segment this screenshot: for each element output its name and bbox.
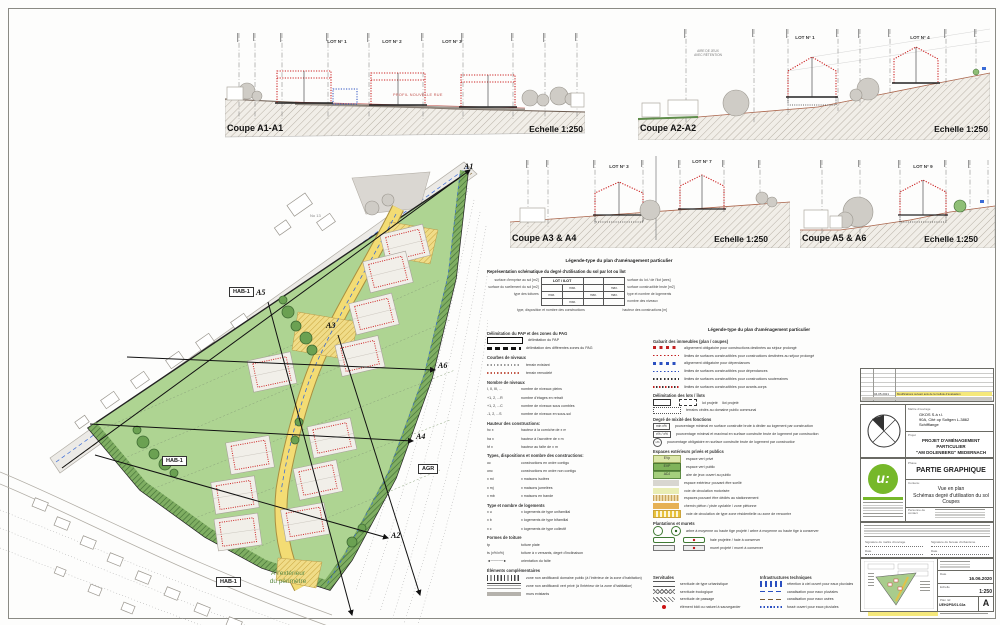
legend-label: orientation du faîte — [521, 559, 551, 563]
legend-row: min x% pourcentage minimal en surface co… — [653, 422, 865, 430]
legend-label: x maisons en bande — [521, 494, 553, 498]
legend-label: espaces pouvant être dédiés au stationne… — [684, 496, 759, 500]
legend-swatch — [760, 606, 782, 608]
coupe-a1-scale: Echelle 1:250 — [513, 124, 583, 134]
legend-row: EVP espace vert public — [653, 463, 865, 471]
legend-row: Espaces extérieurs privés et publics — [653, 447, 865, 455]
legend-code: oc — [487, 461, 521, 465]
schema-left-labels: surface d'emprise au sol [m2] surface du… — [487, 277, 539, 298]
legend-section-header: Délimitation du PAP et des zones du PAG — [487, 331, 567, 336]
title-block: 04.05.2021 Modifications suivant avis de… — [858, 366, 994, 616]
legend-row: EVp espace vert privé — [653, 455, 865, 463]
legend-section-header: Gabarit des immeubles (plan / coupes) — [653, 339, 728, 344]
legend-swatch — [487, 347, 521, 350]
legend-label: arbre à moyenne ou haute tige projeté / … — [686, 529, 819, 533]
legend-label: voie de circulation motorisée — [684, 489, 730, 493]
coupe-a3-a4: LOT N° 3 LOT N° 7 Coupe A3 & A4 Echelle … — [510, 148, 790, 248]
legend-row: fossé ouvert pour eaux pluviales — [760, 603, 868, 611]
legend-left-column: Délimitation du PAP et des zones du PAG … — [487, 328, 651, 598]
legend-row: hf x hauteur au faîte de x m — [487, 443, 651, 451]
legend-row: arbre à moyenne ou haute tige projeté / … — [653, 526, 865, 536]
legend-label: canalisation pour eaux usées — [787, 597, 834, 601]
keyplan-thumbnail — [864, 561, 934, 609]
legend-label: x logements de type bifamilial — [521, 518, 568, 522]
legend-row: canalisation pour eaux usées — [760, 596, 868, 604]
legend-row: délimitation du PAP — [487, 336, 651, 344]
zone-label-hab1-a: HAB-1 — [229, 287, 254, 297]
client-project-block: Maître d'ouvrage GKOS S.à r.l. 90A, Cité… — [860, 404, 994, 458]
legend-code: ◄─────► — [487, 559, 521, 563]
coupe-a5-a6-title: Coupe A5 & A6 — [802, 233, 866, 243]
legend-label-2: îlot projeté — [722, 401, 739, 405]
coupe-a2-scale: Echelle 1:250 — [918, 124, 988, 134]
schema-subtitle: Représentation schématique du degré d'ut… — [487, 269, 685, 274]
legend-label: constructions en ordre contigu — [521, 461, 569, 465]
section-label-a5: A5 — [256, 288, 265, 297]
legal-text — [864, 525, 990, 537]
coupe-a2-title: Coupe A2-A2 — [640, 123, 696, 133]
legend-label: nombre de niveaux pleins — [521, 387, 562, 391]
legend-label: limites de surfaces constructibles pour … — [684, 369, 768, 373]
legend-row: Courbes de niveaux — [487, 353, 651, 361]
coupe-a2-lot-4: LOT N° 4 — [900, 35, 940, 40]
legend-code: x u — [487, 510, 521, 514]
coupe-a4-lot-7: LOT N° 7 — [682, 159, 722, 164]
legend-label: chemin piéton / piste cyclable / zone pi… — [684, 504, 757, 508]
legend-row: x mj x maisons jumelées — [487, 484, 651, 492]
legend-row: Éléments complémentaires — [487, 565, 651, 573]
legend-label: espace vert public — [686, 465, 715, 469]
phase-label: Phase — [908, 461, 917, 465]
legend-code: I, II, III, ... — [487, 387, 521, 391]
legend-code: x c — [487, 527, 521, 531]
legend-code: ts (x%/x%) — [487, 551, 521, 555]
signature-office-line — [931, 546, 989, 547]
coupe-a1-street-note: PROFIL NOUVELLE RUE — [393, 93, 443, 97]
legend-code-boxed: x% / x% — [653, 431, 671, 438]
legend-row: x mi x maisons isolées — [487, 475, 651, 483]
urbanist-address-text — [863, 502, 903, 519]
legend-section-header: Degré de mixité des fonctions — [653, 417, 711, 422]
schema-block: Légende-type du plan d'aménagement parti… — [487, 258, 685, 312]
legend-row: Délimitation des lots / îlots — [653, 391, 865, 399]
legend-swatch — [487, 592, 521, 596]
legend-label: fossé ouvert pour eaux pluviales — [787, 605, 839, 609]
legend-swatch — [487, 372, 521, 373]
legend-row: Type et nombre de logements — [487, 500, 651, 508]
legend-swatch — [653, 526, 663, 536]
legend-label: constructions en ordre non contigu — [521, 469, 576, 473]
file-reference-strip — [860, 612, 992, 616]
urbanist-logo: u: — [868, 464, 898, 494]
legend-label: x logements de type unifamilial — [521, 510, 570, 514]
legend-label: x maisons isolées — [521, 477, 549, 481]
client-label: Maître d'ouvrage — [908, 407, 930, 411]
legend-label: hauteur au faîte de x m — [521, 445, 558, 449]
legend-row: alignement obligatoire pour dépendances — [653, 360, 865, 368]
legend-swatch — [760, 599, 782, 601]
legend-swatch — [653, 378, 679, 380]
content-label: Contenu — [908, 481, 919, 485]
legend-row: limites de surfaces constructibles pour … — [653, 375, 865, 383]
legend-swatch — [653, 371, 679, 373]
legend-label: hauteur à l'acrotère de x m — [521, 437, 564, 441]
legend-row: délimitation des différentes zones du PA… — [487, 344, 651, 352]
legend-label: pourcentage minimal en surface construit… — [675, 424, 813, 428]
legend-swatch — [487, 583, 521, 589]
schema-title: Légende-type du plan d'aménagement parti… — [487, 258, 685, 263]
schema-table: LOT / ILOT max.max. max.max.max. max. — [541, 277, 626, 306]
legend-row: x% / x% pourcentage minimal et maximal e… — [653, 430, 865, 438]
legend-row: x mb x maisons en bande — [487, 492, 651, 500]
legend-label: nombre de niveaux en sous-sol — [521, 412, 571, 416]
field-date-label: Date — [940, 572, 946, 576]
legend-row: Servitudes — [653, 572, 757, 580]
legend-swatch — [487, 337, 523, 344]
schema-bottom-labels: type, disposition et nombre des construc… — [487, 308, 685, 312]
legend-swatch — [653, 495, 679, 501]
legend-section-header: Nombre de niveaux — [487, 380, 525, 385]
legend-swatch-2 — [683, 537, 705, 543]
legend-row: onc constructions en ordre non contigu — [487, 467, 651, 475]
urbanist-logo-band — [863, 497, 903, 500]
legend-label: servitude de passage — [680, 597, 714, 601]
legend-swatch — [653, 399, 671, 406]
legend-label: rétention à ciel ouvert pour eaux pluvia… — [787, 582, 853, 586]
legend-label: lot projeté — [702, 401, 718, 405]
legend-row: espace extérieur pouvant être scellé — [653, 479, 865, 487]
legend-label: zone non aedificandi domaine public (à l… — [526, 576, 642, 580]
legend-row: Nombre de niveaux — [487, 377, 651, 385]
pap-sheet: HAB-1 HAB-1 HAB-1 AGR No 13 À l'extérieu… — [0, 0, 1000, 625]
legend-code: +1, 2, ...R — [487, 396, 521, 400]
legend-row: terrains cédés au domaine public communa… — [653, 407, 865, 415]
legend-code: x mj — [487, 486, 521, 490]
legend-row: servitude écologique — [653, 588, 757, 596]
legend-label: alignement obligatoire pour construction… — [684, 346, 797, 350]
legend-row: limites de surfaces constructibles pour … — [653, 352, 865, 360]
coupe-a5-lot-9: LOT N° 9 — [903, 164, 943, 169]
legend-label: espace extérieur pouvant être scellé — [684, 481, 742, 485]
legend-row: x u x logements de type unifamilial — [487, 508, 651, 516]
legend-swatch: ADJ — [653, 471, 681, 479]
legend-label: espace vert privé — [686, 457, 713, 461]
revision-table: 04.05.2021 Modifications suivant avis de… — [860, 368, 994, 402]
legend-row: Plantations et murets — [653, 518, 865, 526]
legend-label: canalisation pour eaux pluviales — [787, 590, 838, 594]
legend-label: alignement obligatoire pour dépendances — [684, 361, 750, 365]
legend-row: Gabarit des immeubles (plan / coupes) — [653, 336, 865, 344]
keyplan-fields-block: Date 16.06.2020 Echelle 1:250 Plan réf. … — [860, 558, 994, 612]
legend-row: tp toiture plate — [487, 541, 651, 549]
legend-label: servitude écologique — [680, 590, 713, 594]
project-label: Projet — [908, 433, 916, 437]
coupe-a2-playground-note: AIRE DE JEUXAVEC RÉTENTION — [686, 49, 730, 57]
legend-row: chemin piéton / piste cyclable / zone pi… — [653, 502, 865, 510]
coupe-a1-lot-1: LOT N° 1 — [317, 39, 357, 44]
field-index-value: A — [979, 598, 993, 608]
legend-row: -1, 2, ...S nombre de niveaux en sous-so… — [487, 410, 651, 418]
legend-swatch: EVP — [653, 463, 681, 471]
legend-row: +1, 2, ...C nombre de niveaux sous combl… — [487, 402, 651, 410]
legend-row: hc x hauteur à la corniche de x m — [487, 426, 651, 434]
contact-value-text — [935, 509, 985, 519]
legend-swatch — [653, 537, 675, 543]
legend-code: hc x — [487, 428, 521, 432]
legend-code: x b — [487, 518, 521, 522]
legend-row: ts (x%/x%) toiture à x versants, degré d… — [487, 549, 651, 557]
field-date-value: 16.06.2020 — [940, 576, 992, 581]
legend-label: toiture à x versants, degré d'inclinaiso… — [521, 551, 583, 555]
signature-client-line — [865, 546, 923, 547]
legend-swatch — [653, 597, 675, 602]
section-label-a6: A6 — [438, 361, 447, 370]
legend-row: murs existants — [487, 590, 651, 598]
legend-row: canalisation pour eaux pluviales — [760, 588, 868, 596]
legend-row: +1, 2, ...R nombre d'étages en retrait — [487, 394, 651, 402]
legend-swatch — [653, 346, 679, 349]
legend-label: terrains cédés au domaine public communa… — [686, 408, 756, 412]
legend-row: Hauteur des constructions: — [487, 418, 651, 426]
legend-label: servitude de type urbanistique — [680, 582, 728, 586]
coupe-a2-drawing — [638, 15, 990, 140]
field-ref-label: Plan réf. — [940, 598, 951, 602]
legend-row: x b x logements de type bifamilial — [487, 516, 651, 524]
coupe-a3-a4-scale: Echelle 1:250 — [698, 234, 768, 244]
legend-row: limites de surfaces constructibles pour … — [653, 383, 865, 391]
section-label-a1: A1 — [464, 162, 473, 171]
coupe-a3-lot-3: LOT N° 3 — [599, 164, 639, 169]
legend-row: x c x logements de type collectif — [487, 525, 651, 533]
legend-row: terrain existant — [487, 361, 651, 369]
legend-infrastructures: Infrastructures techniques rétention à c… — [760, 572, 868, 611]
legend-section-header: Formes de toiture — [487, 535, 522, 540]
coupe-a3-a4-title: Coupe A3 & A4 — [512, 233, 576, 243]
legend-label: terrain existant — [526, 363, 550, 367]
coupe-a1-drawing — [225, 15, 585, 140]
legend-row: Types, dispositions et nombre des constr… — [487, 451, 651, 459]
legend-code: -1, 2, ...S — [487, 412, 521, 416]
legend-row: servitude de passage — [653, 596, 757, 604]
legend-right-column: Gabarit des immeubles (plan / coupes) al… — [653, 336, 865, 552]
legend-right-title: Légende-type du plan d'aménagement parti… — [653, 327, 865, 332]
section-label-a3: A3 — [326, 321, 335, 330]
field-version-text — [940, 561, 970, 568]
coupe-a1-title: Coupe A1-A1 — [227, 123, 283, 133]
coupe-a2-lot-1: LOT N° 1 — [785, 35, 825, 40]
legend-swatch-2 — [679, 399, 697, 406]
date-office-label: Date — [931, 549, 937, 553]
legend-section-header: Types, dispositions et nombre des constr… — [487, 453, 584, 458]
legend-code: ha x — [487, 437, 521, 441]
client-value: GKOS S.à r.l. 90A, Cité op Soltgen L-386… — [919, 412, 969, 427]
legend-section-header: Type et nombre de logements — [487, 503, 545, 508]
coupe-a1-lot-2: LOT N° 2 — [372, 39, 412, 44]
legend-label: toiture plate — [521, 543, 540, 547]
legend-row: ha x hauteur à l'acrotère de x m — [487, 434, 651, 442]
legend-row: lot projeté îlot projeté — [653, 399, 865, 407]
legend-section-header: Éléments complémentaires — [487, 568, 540, 573]
legend-row: ◄─────► orientation du faîte — [487, 557, 651, 565]
legend-swatch — [760, 581, 782, 587]
legend-label: voie de circulation de type zone résiden… — [686, 512, 791, 516]
legend-swatch — [653, 605, 675, 610]
zone-label-hab1-b: HAB-1 — [162, 456, 187, 466]
content-value: Vue en plan Schémas degré d'utilisation … — [907, 486, 995, 506]
legend-section-header: Délimitation des lots / îlots — [653, 393, 705, 398]
legend-row: servitude de type urbanistique — [653, 580, 757, 588]
legend-code-circle: x% — [653, 438, 662, 447]
legend-label: x maisons jumelées — [521, 486, 553, 490]
legend-label: x logements de type collectif — [521, 527, 566, 531]
legend-swatch — [653, 480, 679, 486]
legend-code: tp — [487, 543, 521, 547]
schema-right-labels: surface du lot / de l'îlot [ares] surfac… — [627, 277, 685, 305]
section-label-a4: A4 — [416, 432, 425, 441]
zone-label-agr: AGR — [418, 464, 438, 474]
legend-row: élément bâti ou naturel à sauvegarder — [653, 603, 757, 611]
coupe-a5-a6-scale: Echelle 1:250 — [908, 234, 978, 244]
legend-swatch — [653, 545, 675, 551]
legend-swatch — [653, 362, 679, 365]
coupe-a1-lot-3: LOT N° 3 — [432, 39, 472, 44]
legend-servitudes: Servitudes servitude de type urbanistiqu… — [653, 572, 757, 611]
legend-row: zone non aedificandi vert privé (à l'int… — [487, 582, 651, 590]
legend-code: hf x — [487, 445, 521, 449]
revision-date: 04.05.2021 — [874, 392, 889, 396]
legend-row: I, II, III, ... nombre de niveaux pleins — [487, 385, 651, 393]
legend-swatch — [653, 355, 679, 357]
legend-code: onc — [487, 469, 521, 473]
house-number-13: No 13 — [310, 213, 321, 218]
legend-code: x mi — [487, 477, 521, 481]
legend-row: muret projeté / muret à conserver — [653, 544, 865, 552]
legend-code: x mb — [487, 494, 521, 498]
outside-perimeter-label: À l'extérieur du périmètre — [252, 570, 324, 585]
legend-swatch — [487, 364, 521, 365]
legend-row: oc constructions en ordre contigu — [487, 459, 651, 467]
legend-swatch — [487, 575, 521, 581]
legend-label: limites de surfaces constructibles pour … — [684, 354, 814, 358]
legend-swatch — [653, 488, 679, 494]
north-compass-logo — [865, 411, 903, 451]
legend-section-header: Hauteur des constructions: — [487, 421, 540, 426]
legend-code: +1, 2, ...C — [487, 404, 521, 408]
legend-label: délimitation des différentes zones du PA… — [526, 346, 593, 350]
legend-row: rétention à ciel ouvert pour eaux pluvia… — [760, 580, 868, 588]
site-plan — [0, 160, 488, 625]
legend-label: pourcentage minimal et maximal en surfac… — [676, 432, 819, 436]
legend-row: terrain remodelé — [487, 369, 651, 377]
legend-section-header: Plantations et murets — [653, 521, 695, 526]
legend-row: x% pourcentage obligatoire en surface co… — [653, 438, 865, 447]
legend-row: voie de circulation motorisée — [653, 487, 865, 495]
legend-label: pourcentage obligatoire en surface const… — [667, 440, 795, 444]
legend-label: hauteur à la corniche de x m — [521, 428, 566, 432]
legend-row: ADJ aire de jeux ouvert au public — [653, 471, 865, 479]
legal-signature-block: Signature du maître d'ouvrage Signature … — [860, 522, 994, 558]
phase-value: PARTIE GRAPHIQUE — [907, 467, 995, 474]
section-label-a2: A2 — [391, 531, 400, 540]
legend-swatch — [653, 386, 679, 388]
field-scale-value: 1:250 — [940, 589, 992, 595]
legend-label: murs existants — [526, 592, 549, 596]
legend-row: Infrastructures techniques — [760, 572, 868, 580]
signature-client-label: Signature du maître d'ouvrage — [865, 540, 905, 544]
legend-swatch-2 — [683, 545, 705, 551]
legend-label: terrain remodelé — [526, 371, 552, 375]
project-value: PROJET D'AMÉNAGEMENT PARTICULIER "AM DOL… — [907, 438, 995, 456]
legend-label: nombre d'étages en retrait — [521, 396, 563, 400]
legend-swatch — [653, 510, 681, 518]
legend-row: Formes de toiture — [487, 533, 651, 541]
legend-swatch — [760, 591, 782, 593]
legend-swatch — [653, 581, 675, 587]
legend-row: haie projetée / haie à conserver — [653, 536, 865, 544]
legend-swatch — [653, 503, 679, 509]
legend-row: limites de surfaces constructibles pour … — [653, 367, 865, 375]
legend-label: limites de surfaces constructibles pour … — [684, 385, 767, 389]
legend-swatch — [653, 407, 681, 414]
date-client-line — [865, 554, 923, 555]
legend-label: zone non aedificandi vert privé (à l'int… — [526, 584, 632, 588]
legend-label: délimitation du PAP — [528, 338, 559, 342]
legend-label: haie projetée / haie à conserver — [710, 538, 760, 542]
field-scale-label: Echelle — [940, 585, 950, 589]
legend-swatch: EVp — [653, 455, 681, 463]
legend-section-header: Courbes de niveaux — [487, 355, 526, 360]
coupe-a5-a6: LOT N° 9 Coupe A5 & A6 Echelle 1:250 — [800, 148, 995, 248]
legend-section-header: Servitudes — [653, 575, 674, 580]
legend-row: espaces pouvant être dédiés au stationne… — [653, 495, 865, 503]
legend-label: nombre de niveaux sous combles — [521, 404, 575, 408]
signature-office-label: Signature du bureau d'urbanisme — [931, 540, 975, 544]
legend-row: voie de circulation de type zone résiden… — [653, 510, 865, 518]
zone-label-hab1-c: HAB-1 — [216, 577, 241, 587]
legend-row: Délimitation du PAP et des zones du PAG — [487, 328, 651, 336]
coupe-a2: LOT N° 1 LOT N° 4 AIRE DE JEUXAVEC RÉTEN… — [638, 15, 990, 140]
legend-swatch-2 — [671, 526, 681, 536]
legend-section-header: Infrastructures techniques — [760, 575, 812, 580]
legend-row: Degré de mixité des fonctions — [653, 414, 865, 422]
revision-note: Modifications suivant avis de la Cellule… — [897, 392, 991, 396]
legend-label: aire de jeux ouvert au public — [686, 473, 731, 477]
date-office-line — [931, 554, 989, 555]
legend-label: limites de surfaces constructibles pour … — [684, 377, 788, 381]
date-client-label: Date — [865, 549, 871, 553]
field-ref-value: UEH2PS/01.02a — [939, 603, 977, 607]
phase-content-block: u: Phase PARTIE GRAPHIQUE Contenu Vue en… — [860, 458, 994, 522]
legend-label: élément bâti ou naturel à sauvegarder — [680, 605, 741, 609]
legend-row: zone non aedificandi domaine public (à l… — [487, 574, 651, 582]
legend-row: alignement obligatoire pour construction… — [653, 344, 865, 352]
legend-swatch — [653, 589, 675, 594]
contact-label: Personne de contact — [908, 509, 928, 516]
legend-code-boxed: min x% — [653, 423, 670, 430]
coupe-a1: LOT N° 1 LOT N° 2 LOT N° 3 PROFIL NOUVEL… — [225, 15, 585, 140]
legend-section-header: Espaces extérieurs privés et publics — [653, 449, 724, 454]
legend-label: muret projeté / muret à conserver — [710, 546, 763, 550]
